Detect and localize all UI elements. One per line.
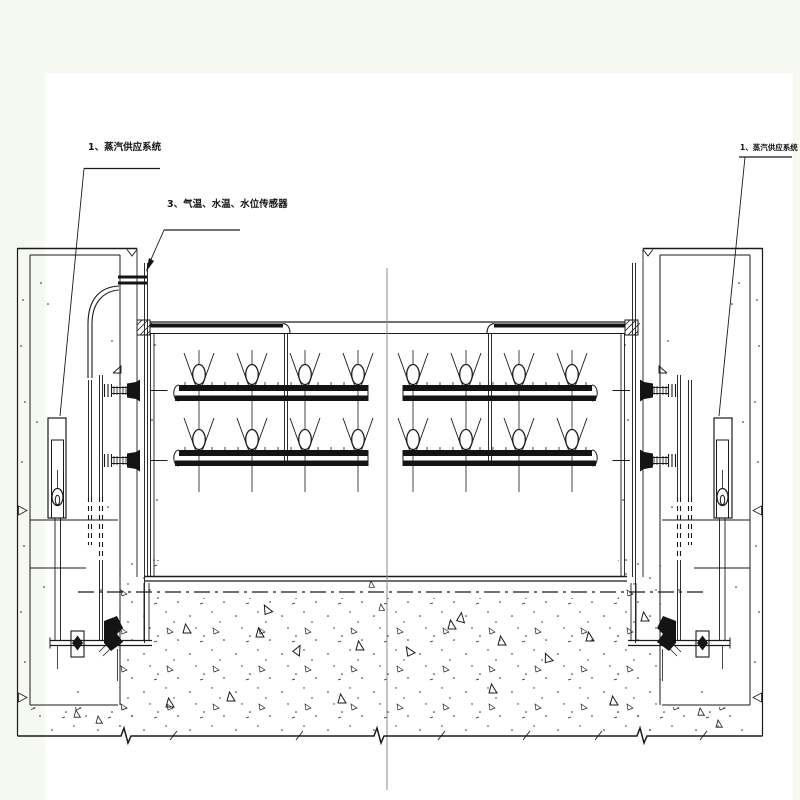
drawing-page: 1、蒸汽供应系统 3、气温、水温、水位传感器 1、蒸汽供应系统	[0, 0, 800, 800]
sensor-conduit-flange	[118, 276, 147, 279]
label-sensors: 3、气温、水温、水位传感器	[167, 198, 288, 210]
label-steam-supply-left: 1、蒸汽供应系统	[88, 141, 162, 153]
label-steam-supply-right: 1、蒸汽供应系统	[740, 142, 798, 152]
dam-gate-section-drawing: 1、蒸汽供应系统 3、气温、水温、水位传感器 1、蒸汽供应系统	[0, 0, 800, 800]
